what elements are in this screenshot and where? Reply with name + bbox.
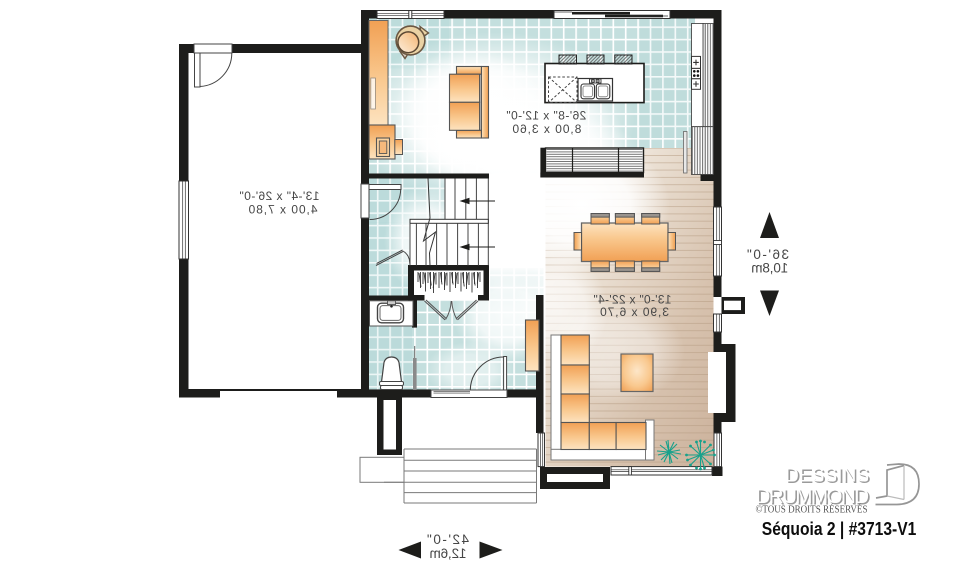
svg-text:12,6m: 12,6m [430, 546, 467, 561]
svg-text:Séquoia 2 | #3713-V1: Séquoia 2 | #3713-V1 [762, 518, 917, 539]
svg-text:10,8m: 10,8m [751, 261, 788, 276]
svg-text:8,00 x 3,60: 8,00 x 3,60 [512, 122, 581, 136]
svg-text:4,00 x 7,80: 4,00 x 7,80 [248, 202, 317, 216]
svg-text:©TOUS DROITS RÉSERVÉS: ©TOUS DROITS RÉSERVÉS [756, 503, 868, 515]
svg-text:DESSINS: DESSINS [785, 466, 869, 487]
svg-text:13'-4" x 26'-0": 13'-4" x 26'-0" [240, 189, 320, 203]
svg-text:26'-8" x 12'-0": 26'-8" x 12'-0" [506, 109, 586, 123]
svg-text:3,90 x 6,70: 3,90 x 6,70 [600, 305, 669, 319]
